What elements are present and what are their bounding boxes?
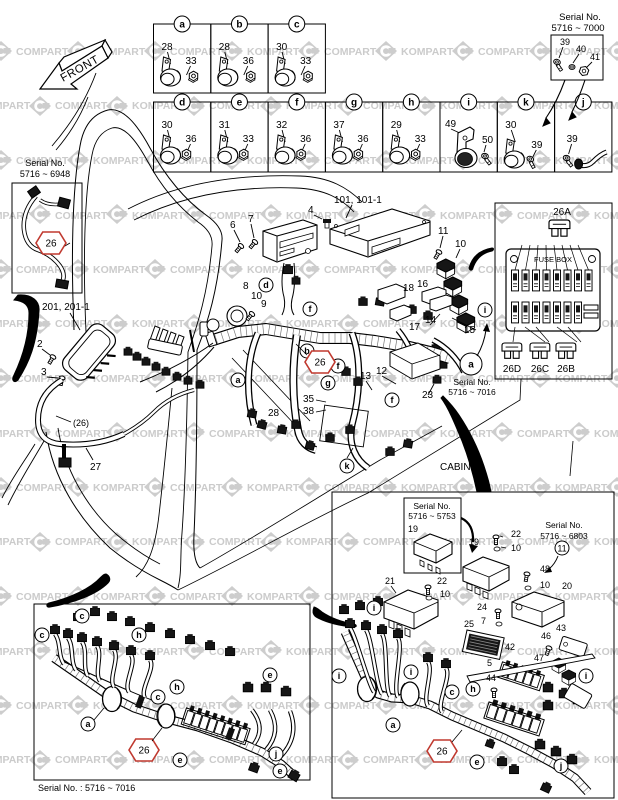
svg-text:16: 16	[417, 279, 429, 290]
svg-text:Serial No.: Serial No.	[413, 501, 450, 511]
svg-text:10: 10	[511, 543, 521, 553]
svg-text:26: 26	[314, 358, 326, 369]
svg-text:c: c	[155, 692, 160, 702]
svg-text:11: 11	[438, 226, 449, 237]
svg-text:26: 26	[138, 746, 150, 757]
svg-text:25: 25	[464, 619, 474, 629]
svg-text:e: e	[177, 755, 182, 765]
svg-text:39: 39	[531, 140, 543, 151]
svg-text:h: h	[136, 630, 142, 640]
svg-text:6: 6	[230, 220, 236, 231]
svg-text:e: e	[267, 670, 272, 680]
svg-text:7: 7	[248, 214, 254, 225]
svg-text:a: a	[468, 360, 474, 371]
svg-text:b: b	[236, 20, 242, 31]
svg-text:39: 39	[567, 134, 579, 145]
svg-text:j: j	[559, 761, 563, 771]
svg-text:36: 36	[186, 134, 198, 145]
svg-text:23: 23	[422, 390, 434, 401]
svg-text:33: 33	[186, 56, 198, 67]
svg-text:Serial No. : 5716 ~ 7016: Serial No. : 5716 ~ 7016	[38, 783, 135, 793]
svg-text:10: 10	[440, 589, 450, 599]
svg-text:43: 43	[556, 623, 566, 633]
svg-text:c: c	[294, 20, 300, 31]
svg-text:7: 7	[481, 616, 486, 626]
svg-text:36: 36	[357, 134, 369, 145]
svg-text:24: 24	[477, 602, 487, 612]
svg-text:35: 35	[303, 394, 315, 405]
svg-text:2: 2	[37, 339, 43, 350]
svg-text:20: 20	[562, 581, 572, 591]
svg-text:31: 31	[219, 120, 231, 131]
svg-text:j: j	[581, 98, 585, 109]
svg-text:Serial No.: Serial No.	[453, 377, 490, 387]
svg-text:29: 29	[391, 120, 403, 131]
svg-text:a: a	[179, 20, 185, 31]
svg-text:c: c	[79, 611, 84, 621]
svg-text:c: c	[39, 630, 44, 640]
svg-text:5716 ~ 5753: 5716 ~ 5753	[408, 511, 456, 521]
svg-text:d: d	[179, 98, 185, 109]
svg-text:26A: 26A	[553, 207, 571, 218]
svg-text:(26): (26)	[73, 418, 89, 428]
svg-text:22: 22	[437, 576, 447, 586]
svg-text:8: 8	[243, 281, 249, 292]
svg-text:28: 28	[268, 408, 280, 419]
svg-text:5716 ~ 6803: 5716 ~ 6803	[540, 531, 588, 541]
svg-text:30: 30	[276, 42, 288, 53]
svg-text:13: 13	[360, 371, 372, 382]
svg-text:37: 37	[333, 120, 345, 131]
svg-text:i: i	[373, 603, 376, 613]
svg-text:h: h	[174, 682, 180, 692]
svg-text:19: 19	[469, 537, 479, 547]
svg-text:k: k	[523, 98, 529, 109]
svg-text:30: 30	[505, 120, 517, 131]
svg-text:28: 28	[219, 42, 231, 53]
svg-text:201, 201-1: 201, 201-1	[42, 302, 90, 313]
svg-text:e: e	[474, 757, 479, 767]
svg-text:11: 11	[557, 544, 566, 554]
svg-text:44: 44	[486, 673, 496, 683]
svg-text:i: i	[410, 667, 413, 677]
svg-text:26: 26	[436, 747, 448, 758]
svg-text:h: h	[408, 98, 414, 109]
svg-text:h: h	[470, 684, 476, 694]
svg-text:49: 49	[445, 119, 457, 130]
svg-text:i: i	[585, 671, 588, 681]
svg-text:Serial No.: Serial No.	[545, 520, 582, 530]
svg-text:19: 19	[408, 524, 418, 534]
svg-text:26B: 26B	[557, 364, 575, 375]
svg-text:41: 41	[590, 52, 600, 62]
svg-text:17: 17	[409, 322, 421, 333]
svg-text:Serial No.: Serial No.	[25, 158, 65, 168]
svg-text:3: 3	[41, 367, 47, 378]
svg-text:Serial No.: Serial No.	[559, 12, 601, 23]
svg-text:33: 33	[300, 56, 312, 67]
svg-text:32: 32	[276, 120, 288, 131]
svg-text:22: 22	[511, 529, 521, 539]
svg-text:26D: 26D	[503, 364, 521, 375]
svg-text:9: 9	[261, 299, 267, 310]
svg-text:33: 33	[415, 134, 427, 145]
svg-text:39: 39	[560, 37, 570, 47]
svg-text:4: 4	[308, 205, 314, 216]
svg-text:5716 ~ 7016: 5716 ~ 7016	[448, 387, 496, 397]
svg-text:26C: 26C	[531, 364, 549, 375]
svg-text:21: 21	[385, 576, 395, 586]
svg-text:10: 10	[540, 580, 550, 590]
svg-text:e: e	[277, 766, 282, 776]
svg-text:j: j	[274, 749, 278, 759]
svg-text:46: 46	[541, 631, 551, 641]
svg-text:47: 47	[534, 653, 544, 663]
svg-text:30: 30	[162, 120, 174, 131]
svg-text:38: 38	[303, 406, 315, 417]
svg-text:50: 50	[482, 135, 494, 146]
svg-text:i: i	[338, 671, 341, 681]
svg-text:g: g	[351, 98, 357, 109]
svg-text:5716 ~ 7000: 5716 ~ 7000	[551, 23, 604, 34]
svg-text:12: 12	[376, 366, 388, 377]
svg-text:5716 ~ 6948: 5716 ~ 6948	[20, 169, 70, 179]
svg-text:i: i	[467, 98, 470, 109]
svg-text:d: d	[263, 280, 269, 290]
svg-text:10: 10	[455, 239, 467, 250]
svg-text:c: c	[449, 687, 454, 697]
svg-text:33: 33	[243, 134, 255, 145]
svg-text:36: 36	[243, 56, 255, 67]
svg-text:101, 101-1: 101, 101-1	[334, 195, 382, 206]
svg-text:36: 36	[300, 134, 312, 145]
svg-text:26: 26	[45, 239, 57, 250]
svg-text:5: 5	[487, 658, 492, 668]
svg-text:g: g	[325, 378, 331, 388]
svg-text:FUSE BOX: FUSE BOX	[534, 255, 572, 264]
svg-text:e: e	[237, 98, 243, 109]
svg-text:42: 42	[505, 642, 515, 652]
svg-text:CABIN: CABIN	[440, 462, 471, 473]
svg-text:27: 27	[90, 462, 102, 473]
svg-text:i: i	[484, 305, 487, 315]
svg-text:40: 40	[576, 44, 586, 54]
svg-text:28: 28	[162, 42, 174, 53]
svg-text:18: 18	[403, 283, 415, 294]
